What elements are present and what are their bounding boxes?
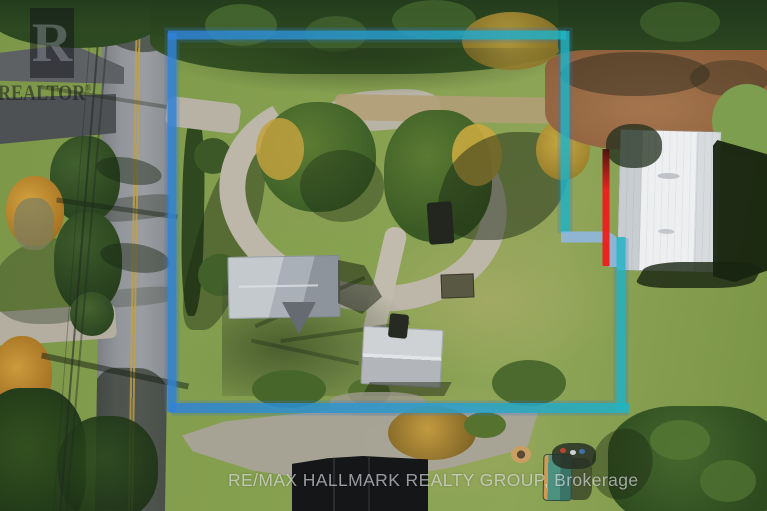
boundary-glow xyxy=(172,35,621,412)
realtor-logo-letter: R xyxy=(32,15,72,71)
property-boundary-overlay xyxy=(0,0,767,511)
brokerage-watermark: RE/MAX HALLMARK REALTY GROUP, Brokerage xyxy=(228,470,588,491)
registered-symbol: ® xyxy=(85,84,91,95)
realtor-wordmark-text: REALTOR xyxy=(0,80,85,105)
realtor-wordmark: REALTOR® xyxy=(0,80,96,106)
aerial-property-photo: R REALTOR® RE/MAX HALLMARK REALTY GROUP,… xyxy=(0,0,767,511)
realtor-logo: R xyxy=(30,8,74,78)
